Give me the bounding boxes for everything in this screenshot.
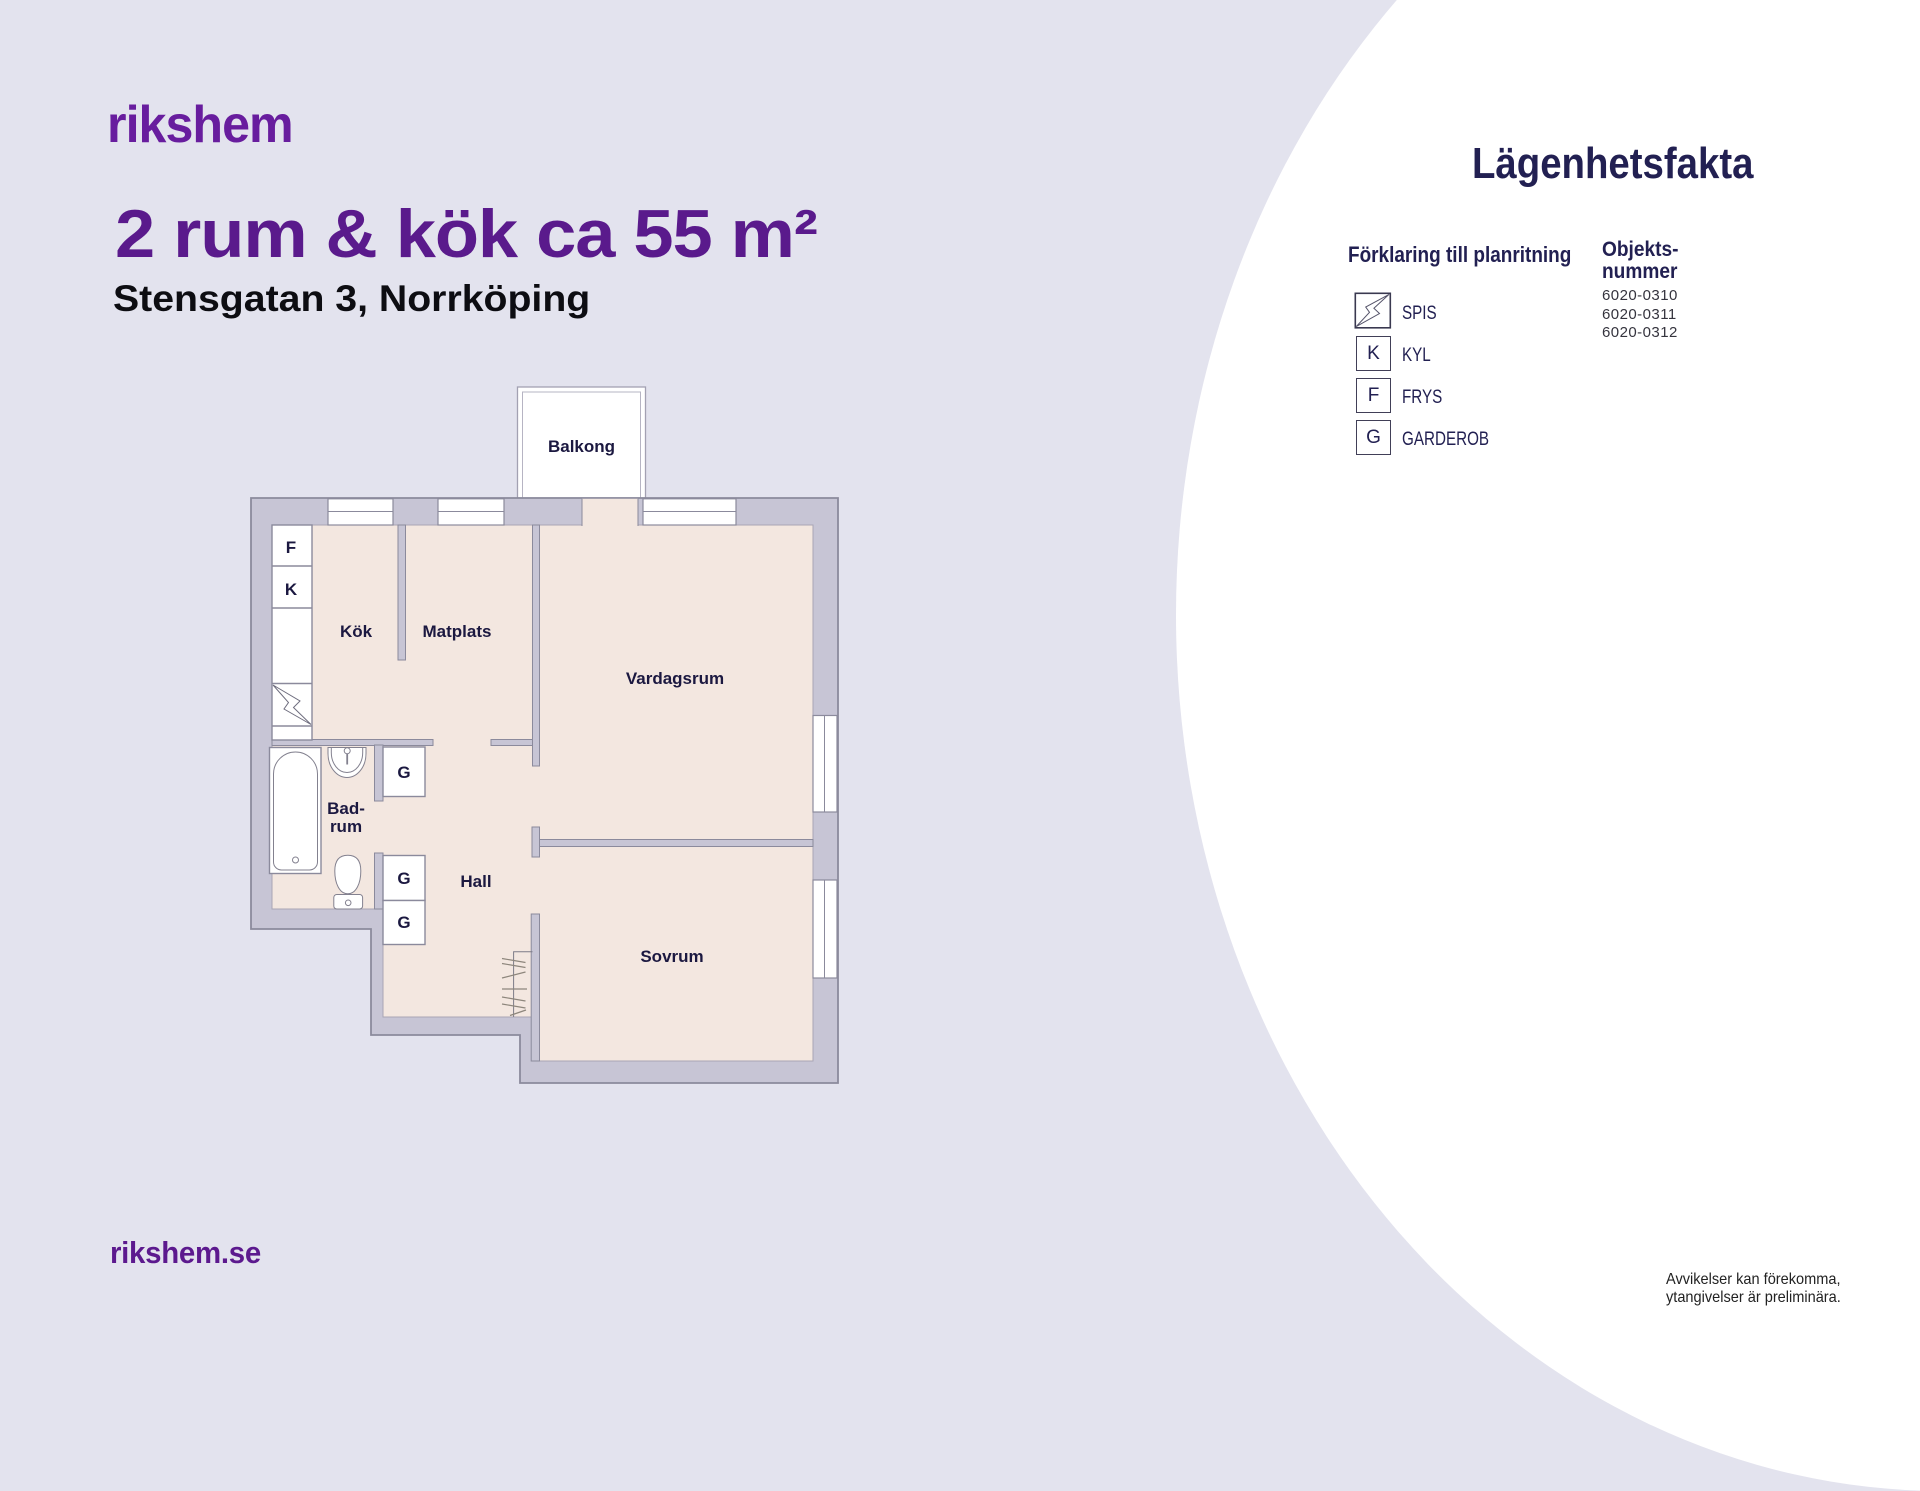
svg-text:Vardagsrum: Vardagsrum bbox=[626, 669, 724, 688]
svg-text:rum: rum bbox=[330, 817, 362, 836]
svg-text:Hall: Hall bbox=[460, 872, 491, 891]
svg-text:G: G bbox=[397, 869, 410, 888]
svg-text:K: K bbox=[285, 580, 298, 599]
svg-text:Bad-: Bad- bbox=[327, 799, 365, 818]
svg-text:Kök: Kök bbox=[340, 622, 373, 641]
svg-text:Sovrum: Sovrum bbox=[640, 947, 703, 966]
svg-text:Balkong: Balkong bbox=[548, 437, 615, 456]
svg-text:G: G bbox=[397, 913, 410, 932]
svg-text:F: F bbox=[286, 538, 296, 557]
svg-text:G: G bbox=[397, 763, 410, 782]
svg-text:Matplats: Matplats bbox=[423, 622, 492, 641]
